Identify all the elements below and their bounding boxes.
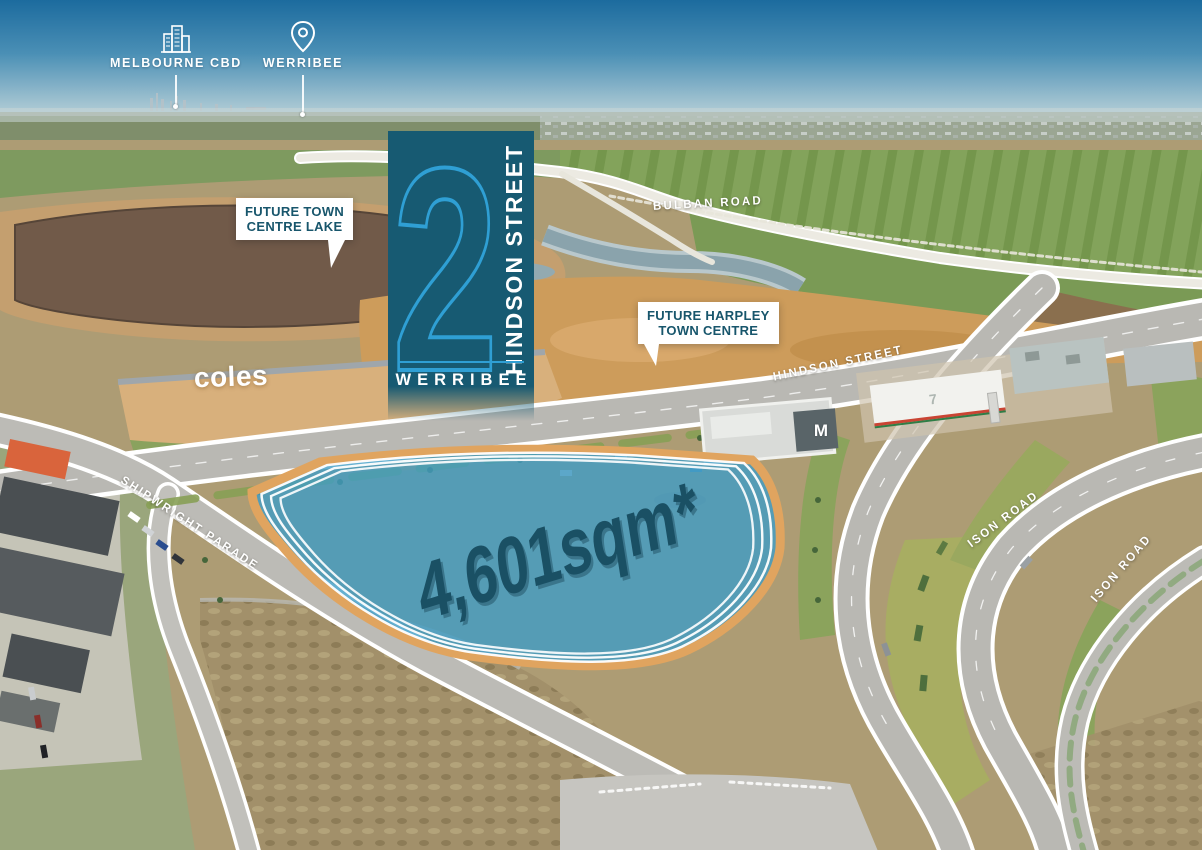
callout-pointer — [328, 240, 345, 268]
coles-sign: coles — [193, 360, 268, 395]
banner-street-name: HINDSON STREET — [501, 143, 528, 375]
marker-werribee-dot — [300, 112, 305, 117]
marker-werribee-label: WERRIBEE — [223, 56, 383, 70]
callout-lake-line1: FUTURE TOWN — [245, 204, 344, 219]
headline-banner: 2 HINDSON STREET WERRIBEE — [388, 131, 534, 421]
banner-divider — [398, 361, 524, 363]
banner-suburb-name: WERRIBEE — [388, 371, 534, 390]
callout-future-harpley-town-centre: FUTURE HARPLEY TOWN CENTRE — [638, 302, 779, 344]
mcdonalds-arch-sign: M — [814, 421, 828, 441]
city-skyline-icon — [158, 22, 194, 56]
callout-pointer — [644, 344, 659, 366]
marker-melbourne-cbd-line — [175, 75, 177, 104]
callout-lake-line2: CENTRE LAKE — [245, 219, 344, 234]
marker-werribee-line — [302, 75, 304, 112]
callout-harpley-line1: FUTURE HARPLEY — [647, 308, 770, 323]
aerial-photo-background — [0, 0, 1202, 850]
aerial-site-plan: MELBOURNE CBD WERRIBEE 2 HINDSON STREET … — [0, 0, 1202, 850]
marker-melbourne-cbd-dot — [173, 104, 178, 109]
map-pin-icon — [285, 18, 321, 56]
callout-future-town-centre-lake: FUTURE TOWN CENTRE LAKE — [236, 198, 353, 240]
callout-harpley-line2: TOWN CENTRE — [647, 323, 770, 338]
